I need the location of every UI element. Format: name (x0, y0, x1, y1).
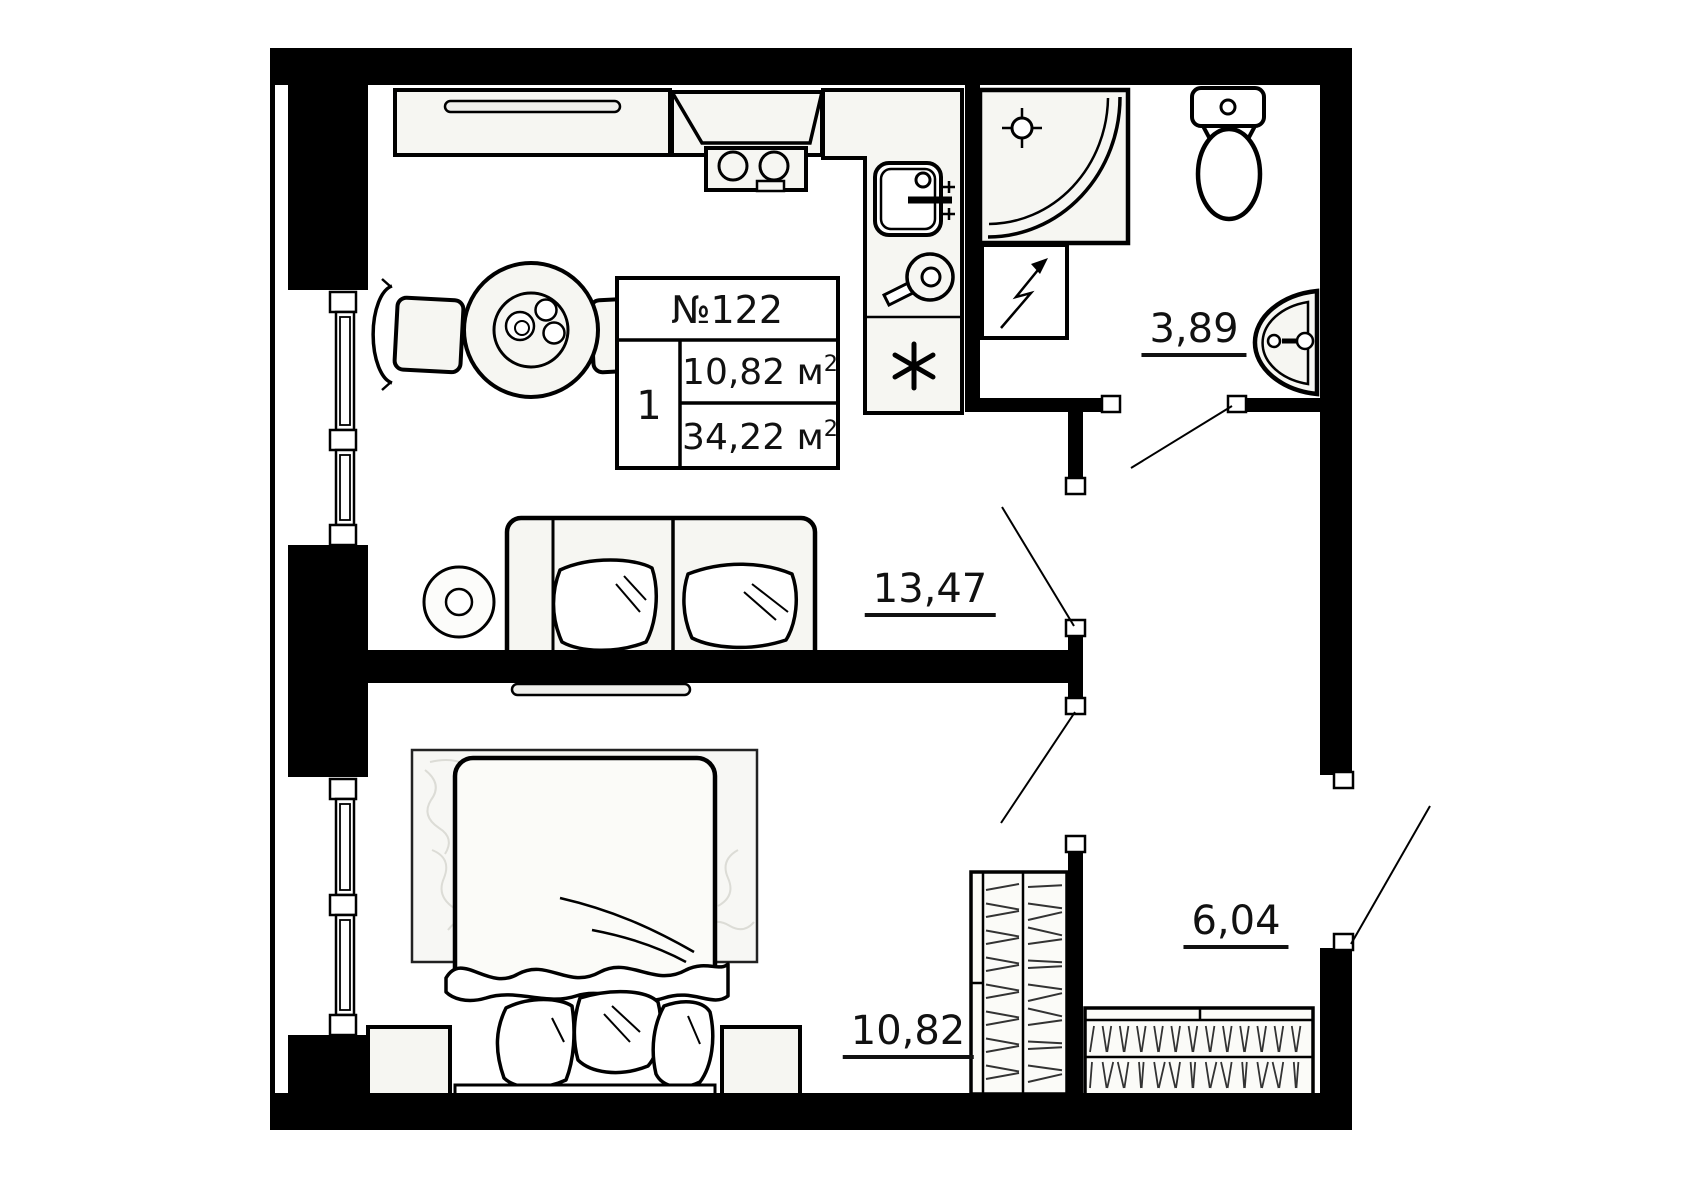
tv (512, 684, 690, 695)
room-area-bathroom: 3,89 (1141, 307, 1246, 357)
floor-plan-drawing (0, 0, 1683, 1190)
washer-place (982, 245, 1067, 338)
room-area-kitchen-living: 13,47 (865, 567, 996, 617)
apartment-room-count: 1 (636, 386, 661, 426)
wall-hall-stub (1068, 412, 1083, 482)
jamb-bedroom-bottom (1066, 836, 1085, 852)
wall-left-pier-2 (288, 545, 368, 777)
wall-facade-line (270, 48, 275, 1130)
wall-bathroom-bottom-right (1240, 398, 1320, 412)
dining-table (464, 263, 598, 397)
nightstand-left (368, 1027, 450, 1097)
burner-icon (719, 152, 747, 180)
bed-pillows (497, 992, 712, 1088)
apartment-number: №122 (671, 291, 783, 329)
apartment-total-area: 34,22 м2 (682, 418, 838, 456)
jamb-entrance-bottom (1334, 934, 1353, 950)
wall-right-upper (1320, 85, 1352, 775)
hallway-wardrobe (1085, 1008, 1313, 1095)
wall-top (272, 48, 1352, 85)
door-swing-entrance (1351, 806, 1430, 944)
toilet (1192, 88, 1264, 219)
jamb-entrance-top (1334, 772, 1353, 788)
wall-living-bedroom (368, 650, 1083, 683)
wall-bottom (272, 1093, 1352, 1130)
jamb-living-bottom (1066, 620, 1085, 636)
wall-right-lower (1320, 948, 1352, 1108)
room-area-hallway: 6,04 (1183, 899, 1288, 949)
wall-left-pier-1 (288, 85, 368, 290)
wall-kitchen-bathroom (965, 85, 980, 412)
jamb-bedroom-top (1066, 698, 1085, 714)
room-area-bedroom: 10,82 (843, 1009, 974, 1059)
wall-bathroom-bottom-left (965, 398, 1108, 412)
nightstand-right (722, 1027, 800, 1097)
apartment-living-area: 10,82 м2 (682, 353, 838, 391)
shower-cabin (980, 90, 1128, 243)
kitchen-cabinet (395, 90, 670, 155)
pouf (424, 567, 494, 637)
burner-icon (760, 152, 788, 180)
jamb-living-top (1066, 478, 1085, 494)
wall-hall-lower (1068, 850, 1083, 1093)
sofa (507, 518, 815, 665)
jamb-bathroom-right (1228, 396, 1246, 412)
wall-left-pier-3 (288, 1035, 368, 1093)
bedroom-wardrobe (971, 872, 1067, 1094)
floor-plan: №122 1 10,82 м2 34,22 м2 13,47 3,89 6,04… (0, 0, 1683, 1190)
jamb-bathroom-left (1102, 396, 1120, 412)
